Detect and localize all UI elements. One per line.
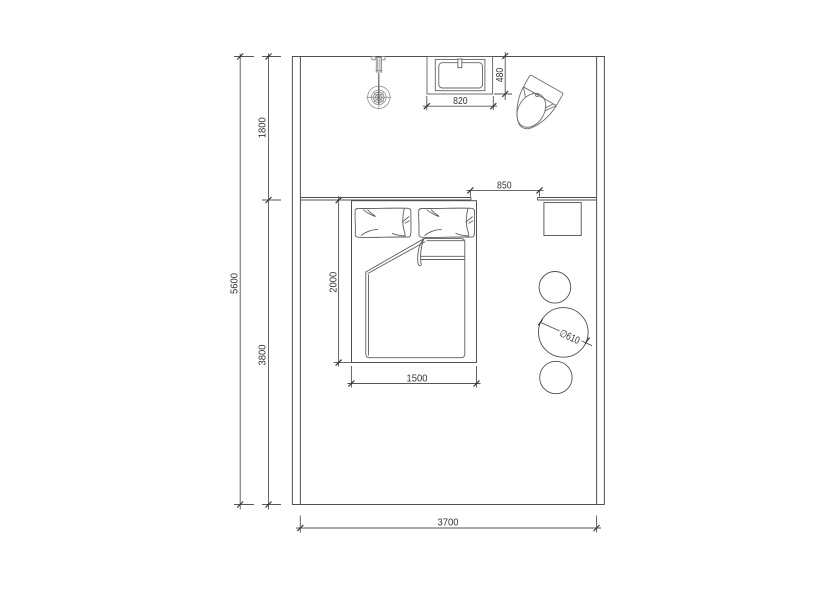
svg-text:1500: 1500 [407, 372, 428, 384]
svg-text:5600: 5600 [228, 273, 240, 294]
svg-text:3700: 3700 [438, 517, 459, 529]
svg-text:820: 820 [453, 95, 468, 107]
svg-text:480: 480 [494, 68, 506, 83]
svg-text:1800: 1800 [257, 117, 269, 138]
svg-text:2000: 2000 [327, 272, 339, 293]
svg-text:850: 850 [497, 179, 512, 191]
svg-text:3800: 3800 [257, 344, 269, 365]
svg-text:∅610: ∅610 [557, 327, 581, 347]
